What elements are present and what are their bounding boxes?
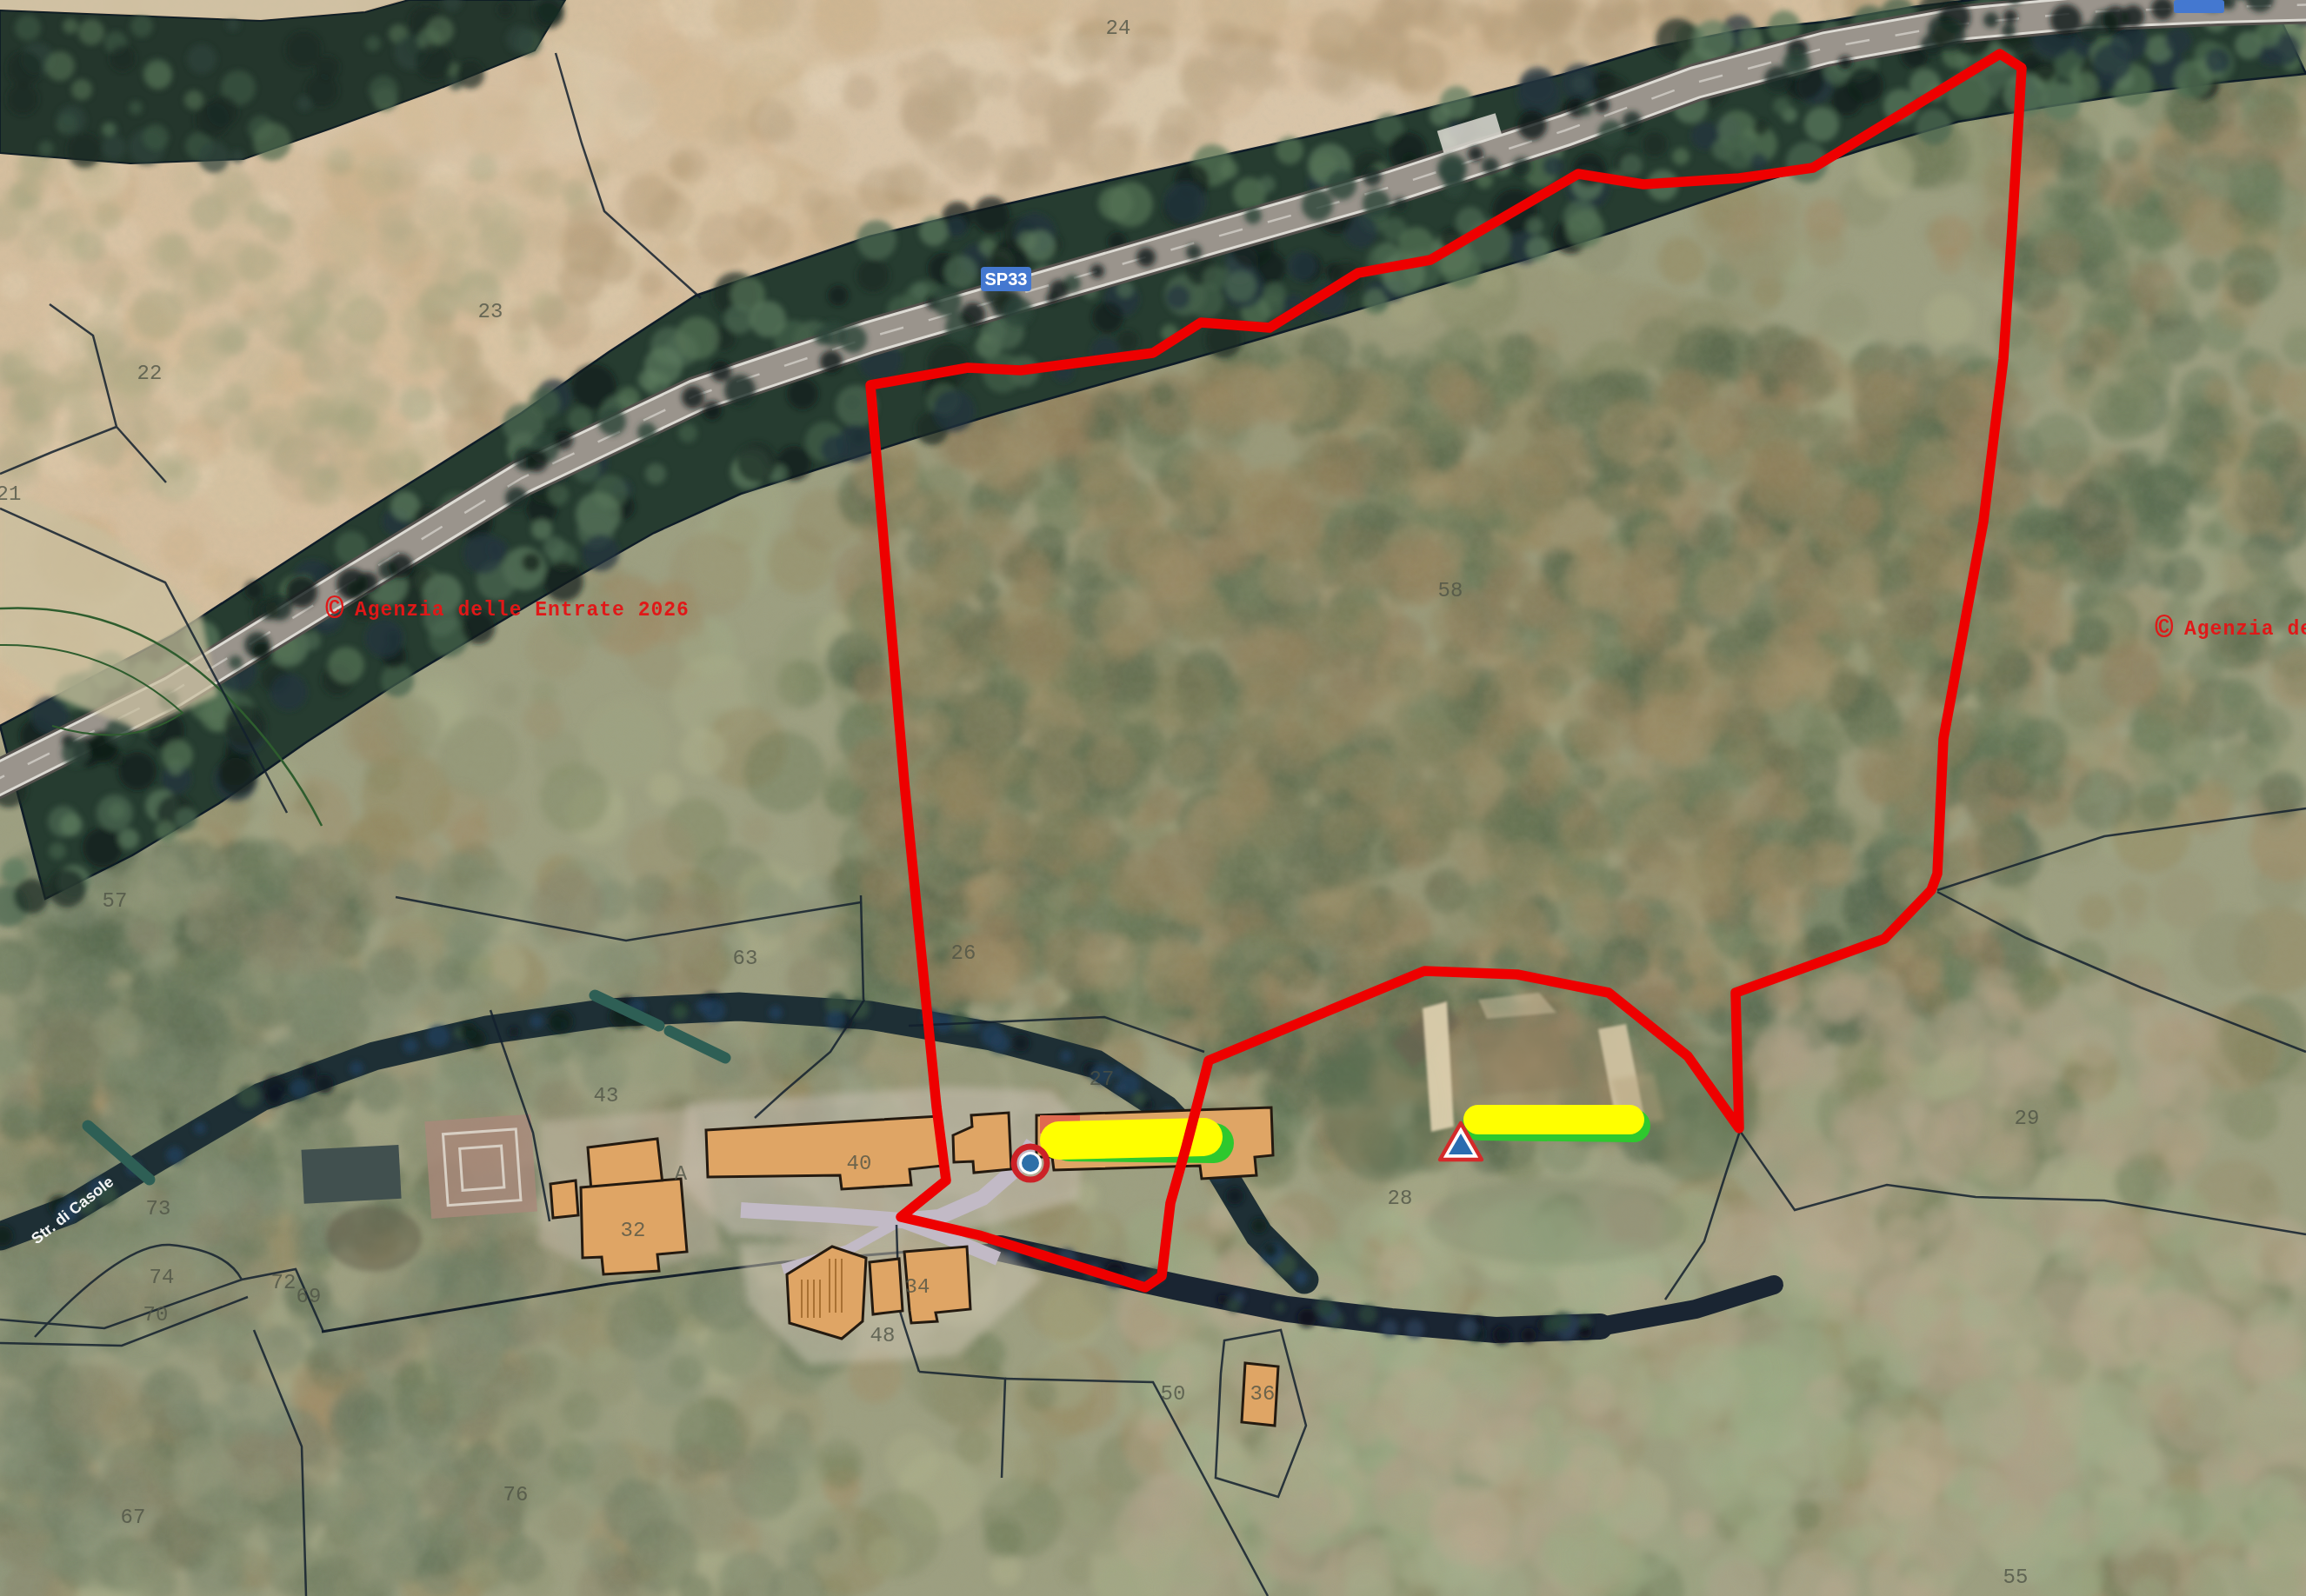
svg-text:34: 34 xyxy=(905,1275,930,1299)
svg-text:50: 50 xyxy=(1161,1382,1186,1406)
svg-text:36: 36 xyxy=(1250,1382,1276,1406)
svg-text:63: 63 xyxy=(733,947,758,970)
svg-text:43: 43 xyxy=(594,1084,619,1107)
svg-text:40: 40 xyxy=(847,1152,872,1175)
svg-text:74: 74 xyxy=(150,1266,175,1289)
svg-text:70: 70 xyxy=(143,1303,169,1327)
svg-text:27: 27 xyxy=(1090,1067,1115,1091)
svg-text:Agenzia delle Entrate 2026: Agenzia delle Entrate 2026 xyxy=(355,599,690,622)
svg-text:58: 58 xyxy=(1438,579,1463,602)
svg-text:21: 21 xyxy=(0,482,21,506)
svg-text:57: 57 xyxy=(103,889,128,913)
svg-text:26: 26 xyxy=(951,941,976,965)
svg-text:23: 23 xyxy=(478,300,503,323)
svg-text:24: 24 xyxy=(1106,17,1131,40)
svg-text:76: 76 xyxy=(503,1483,529,1506)
svg-text:29: 29 xyxy=(2015,1107,2040,1130)
svg-text:69: 69 xyxy=(297,1285,322,1308)
svg-text:28: 28 xyxy=(1388,1187,1413,1210)
svg-text:©: © xyxy=(325,593,344,628)
svg-text:©: © xyxy=(2155,612,2174,648)
svg-text:32: 32 xyxy=(621,1219,646,1242)
svg-text:SP33: SP33 xyxy=(985,269,1028,289)
svg-text:72: 72 xyxy=(271,1271,297,1294)
svg-text:Agenzia delle Entrate 2026: Agenzia delle Entrate 2026 xyxy=(2184,618,2306,641)
svg-text:22: 22 xyxy=(137,362,163,385)
svg-text:67: 67 xyxy=(121,1506,146,1529)
svg-text:A: A xyxy=(675,1162,688,1186)
svg-text:48: 48 xyxy=(870,1324,896,1347)
svg-text:73: 73 xyxy=(146,1197,171,1220)
svg-text:55: 55 xyxy=(2003,1566,2029,1589)
